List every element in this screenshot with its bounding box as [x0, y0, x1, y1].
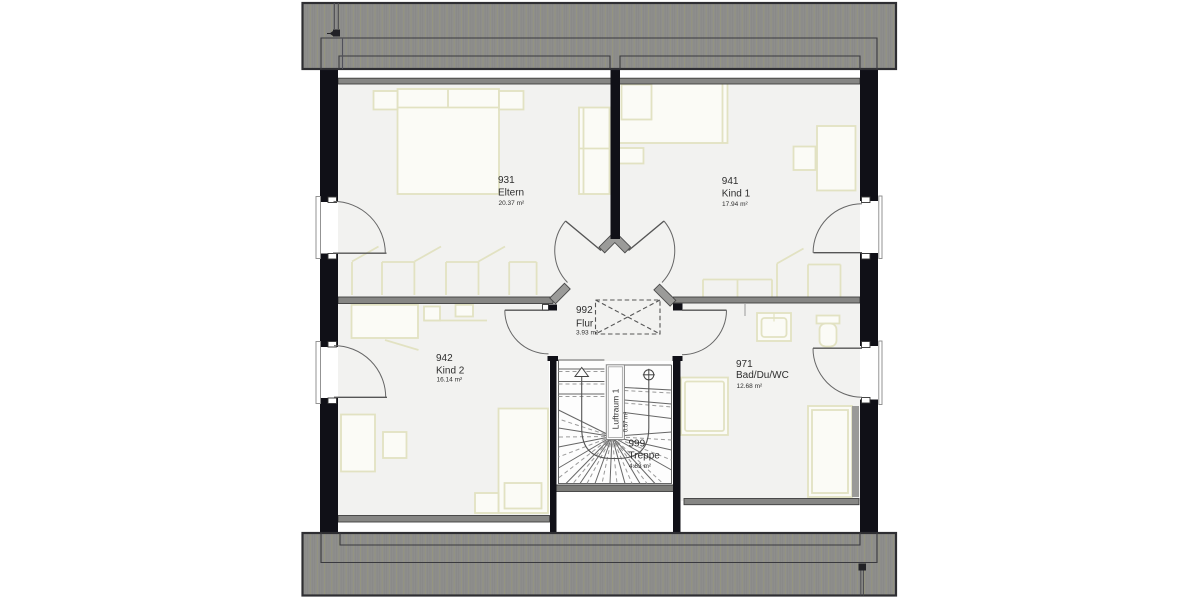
svg-text:941: 941	[722, 176, 739, 187]
svg-text:931: 931	[498, 175, 515, 186]
svg-text:Flur: Flur	[576, 318, 594, 329]
svg-text:4.63 m²: 4.63 m²	[629, 463, 652, 470]
svg-text:20.37 m²: 20.37 m²	[499, 200, 525, 207]
svg-text:Bad/Du/WC: Bad/Du/WC	[736, 370, 789, 381]
svg-text:Treppe: Treppe	[629, 451, 661, 462]
svg-text:Kind 1: Kind 1	[722, 188, 751, 199]
svg-text:16.14 m²: 16.14 m²	[437, 377, 463, 384]
svg-text:12.68 m²: 12.68 m²	[737, 383, 763, 390]
svg-text:17.94 m²: 17.94 m²	[722, 201, 748, 208]
svg-text:Eltern: Eltern	[498, 187, 524, 198]
svg-text:992: 992	[576, 305, 593, 316]
svg-text:3.93 m²: 3.93 m²	[576, 330, 599, 337]
svg-text:Kind 2: Kind 2	[436, 365, 465, 376]
svg-text:942: 942	[436, 353, 453, 364]
svg-text:0.57 m²: 0.57 m²	[624, 412, 630, 432]
svg-text:971: 971	[736, 359, 753, 370]
svg-text:999: 999	[629, 439, 646, 450]
svg-text:Luftraum 1: Luftraum 1	[611, 388, 621, 429]
